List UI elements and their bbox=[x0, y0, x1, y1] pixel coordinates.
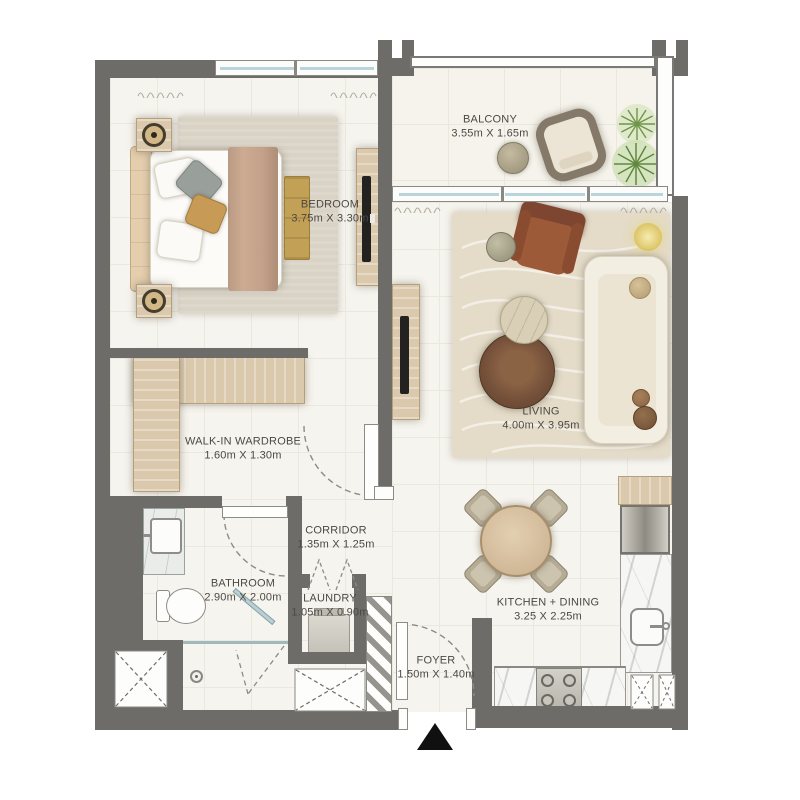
curtain-squiggle bbox=[620, 204, 668, 213]
sofa-round-pillow bbox=[629, 277, 651, 299]
room-label-bedroom: BEDROOM 3.75m X 3.30m bbox=[291, 199, 368, 226]
sofa-round-pillow bbox=[632, 389, 650, 407]
room-name: BEDROOM bbox=[291, 199, 368, 213]
sink-faucet-icon bbox=[662, 622, 670, 630]
kitchen-tall-cabinet bbox=[618, 476, 672, 505]
floor-lamp-glow bbox=[634, 223, 662, 251]
room-label-kitchen: KITCHEN + DINING 3.25 X 2.25m bbox=[497, 597, 600, 624]
balcony-parapet-right bbox=[656, 56, 674, 196]
lounge-chair-cushion bbox=[558, 150, 593, 170]
wall-bathroom-top-jamb bbox=[286, 496, 302, 508]
coffee-table-marble bbox=[500, 296, 548, 344]
room-dims: 3.55m X 1.65m bbox=[451, 127, 528, 141]
room-label-bathroom: BATHROOM 2.90m X 2.00m bbox=[204, 578, 281, 605]
laundry-bifold-doors bbox=[304, 556, 364, 592]
sink-faucet-icon bbox=[142, 534, 152, 537]
room-name: FOYER bbox=[397, 655, 474, 669]
room-name: KITCHEN + DINING bbox=[497, 597, 600, 611]
room-name: LAUNDRY bbox=[291, 593, 368, 607]
living-tv-icon bbox=[400, 316, 409, 394]
wall-bathroom-left-block bbox=[95, 496, 143, 650]
bedroom-window bbox=[215, 60, 378, 76]
entry-threshold-jamb bbox=[398, 708, 408, 730]
room-dims: 3.25 X 2.25m bbox=[497, 610, 600, 624]
bed-headboard bbox=[130, 146, 152, 292]
balcony-side-table bbox=[497, 142, 529, 174]
room-label-balcony: BALCONY 3.55m X 1.65m bbox=[451, 114, 528, 141]
room-label-laundry: LAUNDRY 1.05m X 0.90m bbox=[291, 593, 368, 620]
sliding-door-glass-line bbox=[591, 193, 663, 196]
service-shaft-hatched bbox=[366, 596, 392, 712]
room-name: CORRIDOR bbox=[297, 525, 374, 539]
room-name: BATHROOM bbox=[204, 578, 281, 592]
lamp-center-dot bbox=[151, 298, 157, 304]
tv-mount-dot bbox=[370, 214, 375, 223]
sliding-door-glass-line bbox=[505, 193, 585, 196]
shower-door-swing bbox=[232, 644, 288, 698]
sliding-door-glass-line bbox=[399, 193, 499, 196]
room-dims: 4.00m X 3.95m bbox=[502, 419, 579, 433]
coffee-table-wood bbox=[479, 333, 555, 409]
lamp-center-dot bbox=[151, 132, 157, 138]
room-dims: 1.05m X 0.90m bbox=[291, 606, 368, 620]
hob-burner-icon bbox=[541, 674, 554, 687]
wall-end-cap bbox=[374, 486, 394, 500]
window-glass-line bbox=[220, 67, 294, 70]
floor-plan: BEDROOM 3.75m X 3.30m BALCONY 3.55m X 1.… bbox=[0, 0, 800, 800]
shaft-xbox bbox=[294, 668, 366, 712]
entrance-arrow-icon bbox=[417, 723, 453, 750]
window-mullion bbox=[294, 61, 297, 75]
hob-burner-icon bbox=[563, 674, 576, 687]
room-dims: 1.60m X 1.30m bbox=[185, 449, 301, 463]
toilet-bowl bbox=[166, 588, 206, 624]
exterior-wall-bottom-right bbox=[472, 706, 688, 728]
entry-threshold-jamb bbox=[466, 708, 476, 730]
window-glass-line bbox=[300, 67, 374, 70]
room-name: BALCONY bbox=[451, 114, 528, 128]
balcony-pillar-notch bbox=[392, 40, 402, 58]
room-name: LIVING bbox=[502, 406, 579, 420]
sofa-round-pillow bbox=[633, 406, 657, 430]
wall-laundry-bottom bbox=[288, 652, 366, 664]
wall-bedroom-living bbox=[378, 60, 392, 500]
curtain-squiggle bbox=[137, 89, 185, 98]
exterior-wall-right bbox=[672, 196, 688, 730]
curtain-squiggle bbox=[330, 89, 378, 98]
room-dims: 2.90m X 2.00m bbox=[204, 591, 281, 605]
wardrobe-cabinet-side bbox=[133, 356, 180, 492]
balcony-parapet-top bbox=[410, 56, 656, 68]
shaft-xbox bbox=[114, 650, 168, 708]
wall-wardrobe-top bbox=[110, 348, 308, 358]
balcony-sliding-door bbox=[392, 186, 668, 202]
room-name: WALK-IN WARDROBE bbox=[185, 436, 301, 450]
sliding-door-mullion bbox=[587, 187, 590, 201]
fridge bbox=[620, 505, 670, 554]
floor-drain-dot bbox=[195, 675, 198, 678]
room-label-corridor: CORRIDOR 1.35m X 1.25m bbox=[297, 525, 374, 552]
room-label-living: LIVING 4.00m X 3.95m bbox=[502, 406, 579, 433]
room-dims: 1.35m X 1.25m bbox=[297, 538, 374, 552]
shaft-xbox bbox=[658, 674, 676, 710]
dining-table bbox=[480, 505, 552, 577]
bathroom-sink bbox=[150, 518, 182, 554]
bathroom-door-leaf bbox=[222, 506, 288, 518]
stone-accent-table bbox=[486, 232, 516, 262]
room-label-wardrobe: WALK-IN WARDROBE 1.60m X 1.30m bbox=[185, 436, 301, 463]
shaft-xbox bbox=[630, 674, 654, 710]
room-dims: 1.50m X 1.40m bbox=[397, 668, 474, 682]
bed-runner bbox=[228, 147, 278, 291]
room-label-foyer: FOYER 1.50m X 1.40m bbox=[397, 655, 474, 682]
sliding-door-mullion bbox=[501, 187, 504, 201]
room-dims: 3.75m X 3.30m bbox=[291, 212, 368, 226]
curtain-squiggle bbox=[394, 204, 442, 213]
bathroom-door-swing bbox=[222, 512, 288, 578]
